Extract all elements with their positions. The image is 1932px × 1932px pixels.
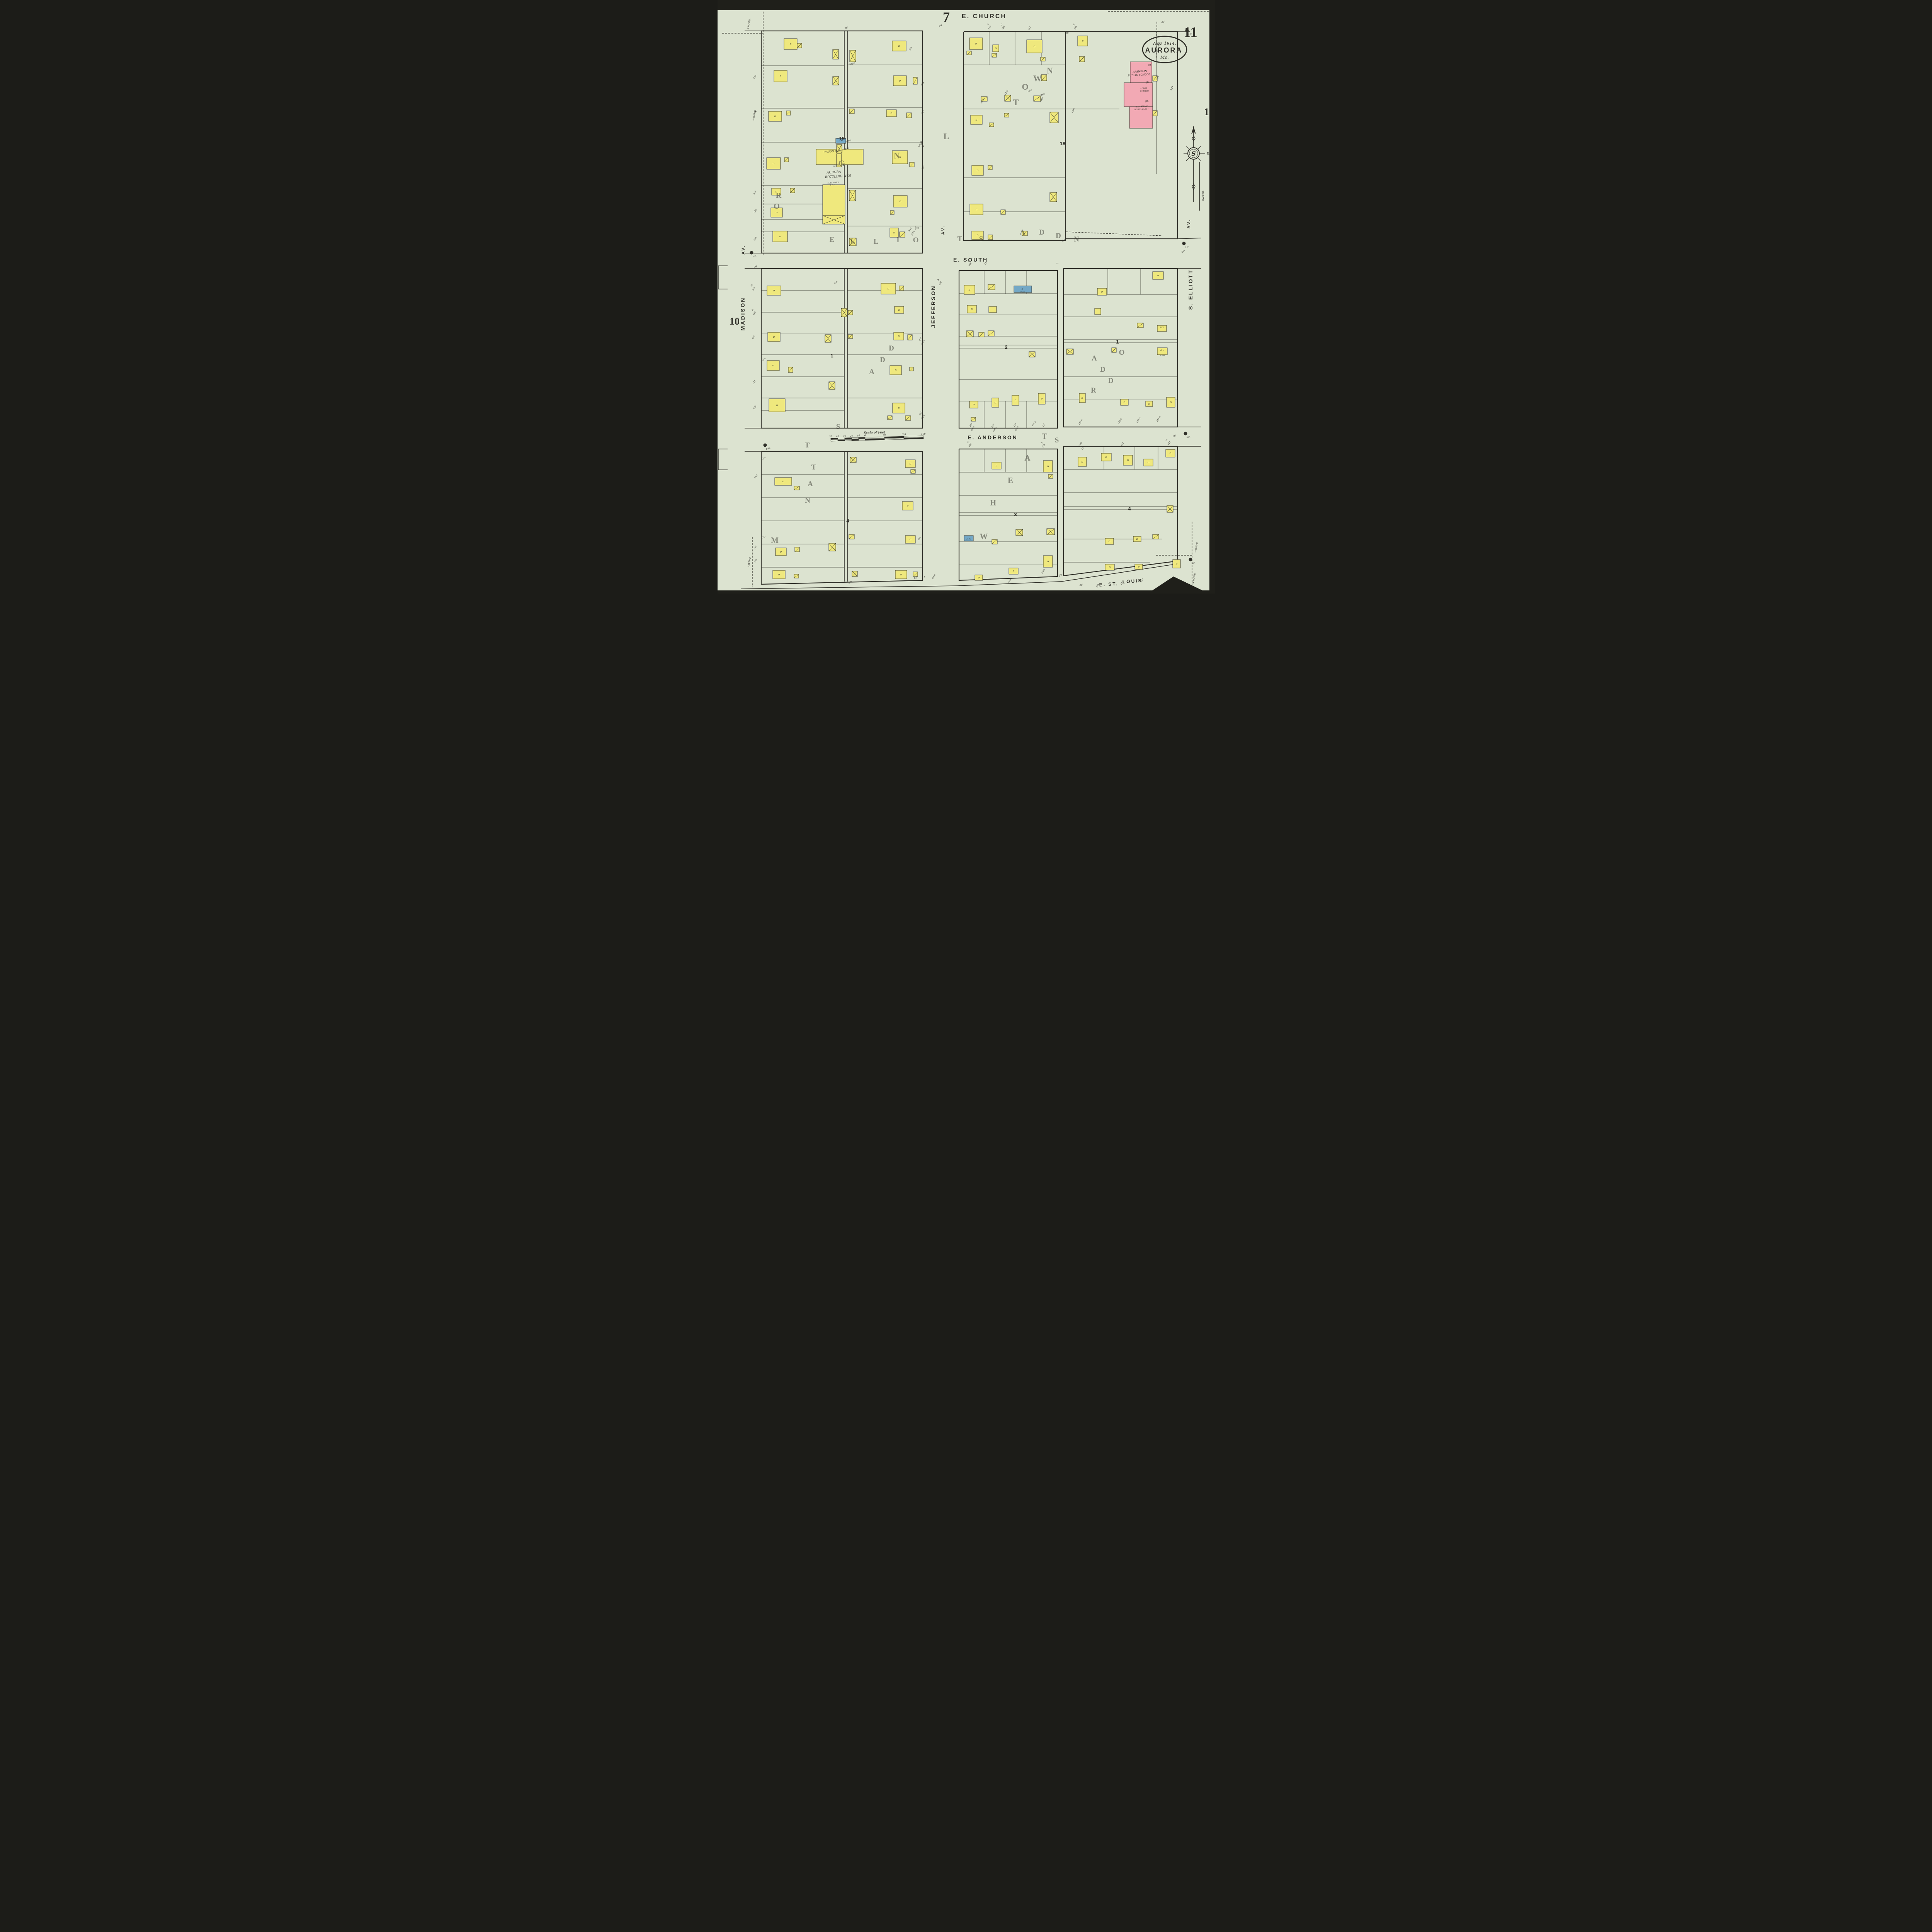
block-number: 2	[1005, 344, 1007, 350]
building-label: D	[772, 336, 775, 338]
map-annotation: STEAM	[1140, 87, 1147, 90]
scale-tick-label: 0	[864, 434, 866, 437]
border-bottom	[718, 590, 1215, 594]
building-label: D	[887, 288, 889, 290]
addition-letter: D	[1100, 366, 1105, 374]
building-label: D	[909, 539, 911, 541]
addition-letter: L	[850, 237, 855, 245]
addition-letter: L	[873, 238, 878, 246]
building-label: D	[1012, 570, 1014, 573]
building-label: D	[1169, 401, 1172, 404]
block-number: 18	[1060, 141, 1065, 146]
hydrant-dot	[1189, 558, 1192, 561]
block-number: 4	[846, 518, 849, 524]
addition-letter: N	[894, 151, 900, 160]
street-elliott: S. ELLIOTT	[1187, 269, 1194, 310]
hydrant-dot	[763, 444, 767, 447]
addition-letter: A	[1092, 354, 1097, 362]
scale-segment	[844, 438, 851, 439]
building-label: D	[968, 289, 970, 291]
building-frame	[823, 185, 845, 216]
scale-tick-label: 150	[921, 433, 925, 435]
addition-letter: S	[836, 423, 840, 431]
building-label: D	[898, 309, 900, 311]
map-canvas: DDDDDDDDDDDDDDDDDDDDDDDDDDDDDDDDDDDDDDDD…	[718, 0, 1215, 594]
building-label: D	[774, 116, 776, 118]
addition-letter: T	[914, 226, 920, 230]
building-label: D	[782, 481, 784, 483]
street-elliott-av: AV.	[1187, 219, 1191, 229]
building-label: D	[972, 404, 975, 406]
building-label: D	[1148, 403, 1150, 405]
building-label: D	[975, 209, 977, 211]
building-label: D	[897, 407, 900, 410]
building-label: D	[1105, 456, 1107, 459]
map-annotation: (C.B.)	[1020, 291, 1025, 293]
street-anderson: E. ANDERSON	[968, 434, 1018, 440]
addition-letter: N	[805, 497, 810, 505]
building-label: D	[897, 335, 900, 338]
building-label: D	[893, 232, 895, 234]
scale-tick-label: 50	[829, 435, 832, 438]
border-top	[718, 0, 1215, 10]
building-brick	[1124, 83, 1153, 107]
addition-letter: N	[1074, 235, 1079, 243]
building-label: D	[772, 290, 775, 292]
building-label: D	[970, 308, 973, 311]
addition-letter: G	[838, 158, 845, 168]
building-label: D	[976, 170, 978, 172]
building-label: D	[1081, 40, 1083, 43]
addition-letter: A	[918, 139, 924, 149]
map-annotation: AUTO HO	[837, 138, 844, 139]
building-label: D	[779, 75, 781, 78]
scale-tick-label: 30	[843, 435, 846, 437]
building-label: D	[977, 577, 980, 579]
page-ref-7: 7	[943, 9, 950, 25]
scale-tick-label: 20	[849, 435, 853, 437]
addition-letter: T	[811, 463, 816, 471]
addition-letter: D	[1108, 377, 1114, 385]
building-label: D	[894, 369, 896, 372]
sanborn-map-sheet: DDDDDDDDDDDDDDDDDDDDDDDDDDDDDDDDDDDDDDDD…	[718, 0, 1215, 594]
building-label: D	[1175, 563, 1177, 565]
block-number: 4	[1128, 506, 1131, 512]
building-label: D	[779, 236, 781, 238]
addition-letter: I	[896, 236, 899, 244]
building-label: D	[789, 43, 791, 46]
addition-letter: M	[771, 536, 779, 545]
hydrant-dot	[1184, 432, 1187, 435]
addition-letter: T	[804, 441, 810, 449]
building-label: D	[772, 163, 774, 165]
addition-letter: W	[1033, 73, 1042, 83]
building-label: D	[1033, 46, 1035, 48]
building-label: D	[909, 463, 911, 465]
building-label: D	[1137, 566, 1139, 568]
building-label: D	[898, 80, 901, 82]
building-label: D	[1046, 561, 1049, 563]
addition-letter: D	[880, 356, 885, 364]
map-annotation: 25	[1055, 263, 1058, 265]
border-right	[1209, 0, 1215, 594]
building-label: D	[1108, 566, 1111, 569]
addition-letter: E	[829, 236, 834, 244]
building-label: D	[1136, 538, 1138, 541]
building-label: D	[995, 465, 997, 467]
addition-letter: O	[913, 236, 918, 244]
street-rock: Rock St.	[1202, 190, 1205, 201]
building-label: D	[1014, 400, 1016, 402]
building-label: D	[975, 119, 977, 121]
scale-segment	[838, 440, 845, 441]
compass-east-label: E.	[1206, 152, 1210, 155]
building-frame	[989, 306, 997, 313]
addition-letter: L	[943, 131, 949, 141]
building-label: D	[1108, 541, 1110, 543]
scale-tick-label: 40	[835, 435, 839, 437]
addition-letter: A	[869, 368, 874, 376]
building-label: D	[1046, 466, 1049, 468]
block-number: 3	[1014, 512, 1017, 517]
addition-letter: T	[957, 235, 962, 243]
street-south: E. SOUTH	[953, 257, 988, 263]
building-label: D	[775, 212, 777, 214]
building-label: D	[1081, 397, 1083, 400]
addition-letter: A	[808, 480, 813, 488]
scale-tick-label: 50	[883, 434, 886, 436]
title-state: Mo.	[1160, 55, 1168, 60]
block-number: 1	[1116, 339, 1119, 345]
hydrant-dot	[1182, 242, 1185, 245]
building-label: D	[890, 112, 892, 115]
street-madison-av: AV.	[741, 245, 746, 255]
block-number: 1	[830, 353, 833, 359]
building-label: D	[777, 574, 780, 576]
building-label: D	[1147, 462, 1149, 464]
map-annotation: (C.B.)	[966, 538, 971, 540]
street-madison: MADISON	[740, 297, 746, 330]
map-annotation: Sh'd	[1160, 327, 1164, 328]
addition-letter: O	[774, 202, 780, 211]
scale-segment	[858, 437, 865, 439]
building-frame	[1095, 308, 1101, 315]
addition-letter: A	[1020, 228, 1025, 236]
addition-letter: A	[1024, 453, 1031, 463]
addition-letter: D	[1056, 232, 1061, 240]
addition-letter: S	[979, 235, 983, 243]
map-annotation: 2 H.P.	[830, 184, 835, 186]
scale-tick-label: 100	[901, 433, 906, 436]
building-label: D	[1081, 461, 1083, 463]
addition-letter: R	[776, 191, 781, 200]
building-label: D	[1126, 459, 1129, 462]
building-label: D	[975, 43, 977, 45]
building-label: D	[994, 48, 997, 50]
addition-letter: N	[1047, 66, 1053, 75]
map-annotation: (C.B)	[839, 140, 843, 141]
building-label: D	[776, 405, 778, 407]
page-ref-10: 10	[730, 316, 740, 327]
sheet-number: 11	[1184, 24, 1197, 41]
title-city: AURORA	[1145, 46, 1182, 54]
building-label: D	[1100, 291, 1103, 293]
title-date: Nov. 1914.	[1153, 41, 1176, 46]
addition-letter: D	[1039, 228, 1044, 236]
addition-letter: S	[1054, 436, 1059, 444]
addition-letter: R	[1091, 386, 1096, 395]
map-annotation: M. Rm.	[1159, 354, 1165, 356]
addition-letter: T	[1041, 432, 1047, 441]
building-label: D	[898, 45, 900, 48]
addition-letter: H	[990, 498, 996, 507]
scale-segment	[830, 438, 837, 440]
street-jefferson-av: AV.	[941, 225, 946, 235]
building-label: D	[1040, 398, 1043, 400]
building-label: D	[899, 201, 901, 203]
map-annotation: Gro.	[1160, 349, 1164, 352]
hydrant-dot	[750, 251, 753, 255]
addition-letter: E	[1007, 476, 1013, 485]
building-label: D	[994, 402, 996, 404]
map-annotation: D	[1021, 288, 1023, 291]
building-label: D	[906, 505, 908, 507]
building-label: D	[779, 551, 782, 553]
building-label: D	[772, 365, 774, 367]
building-label: D	[1169, 452, 1171, 455]
building-label: D	[900, 574, 902, 576]
building-label: D	[976, 235, 978, 237]
street-church: E. CHURCH	[962, 13, 1007, 20]
addition-letter: T	[1013, 97, 1019, 107]
scale-segment	[852, 439, 859, 441]
street-jefferson: JEFFERSON	[930, 285, 936, 328]
addition-letter: O	[1119, 349, 1124, 357]
building-label: D	[1156, 275, 1159, 277]
compass-monogram: S	[1191, 150, 1196, 157]
scale-tick-label: 10	[857, 434, 860, 437]
addition-letter: D	[889, 344, 894, 352]
map-annotation: HEATERS	[1139, 90, 1149, 92]
addition-letter: W	[980, 532, 988, 541]
building-label: D	[1123, 401, 1125, 404]
